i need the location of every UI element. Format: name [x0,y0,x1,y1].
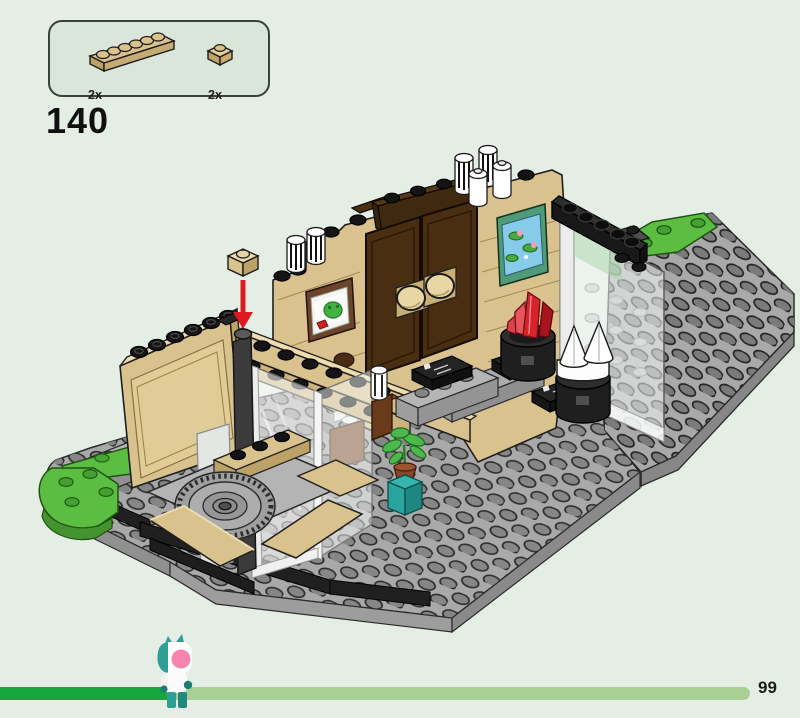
part-plate-1x1-icon [208,45,232,65]
teal-cube [388,475,422,515]
mascot-face [172,650,191,669]
black-stud [615,254,629,263]
parts-callout-panel: 2x 2x [48,20,270,97]
parts-icons [50,22,268,94]
painting-water-lilies [497,204,548,286]
progress-fill[interactable] [0,687,170,700]
floating-part-plate-1x1 [228,249,258,276]
mascot-character[interactable] [148,634,204,710]
part-quantity-label: 2x [208,88,222,102]
black-stud [632,263,646,272]
part-plate-1x6-icon [90,33,174,71]
page-number: 99 [758,678,777,698]
brown-block [372,394,392,440]
progress-area: 99 [0,630,800,718]
grass-corner-rounded [39,468,118,540]
build-3d-viewport[interactable] [0,130,800,635]
instruction-page: { "step": { "number": "140" }, "parts_pa… [0,0,800,718]
target-stud [235,329,252,339]
